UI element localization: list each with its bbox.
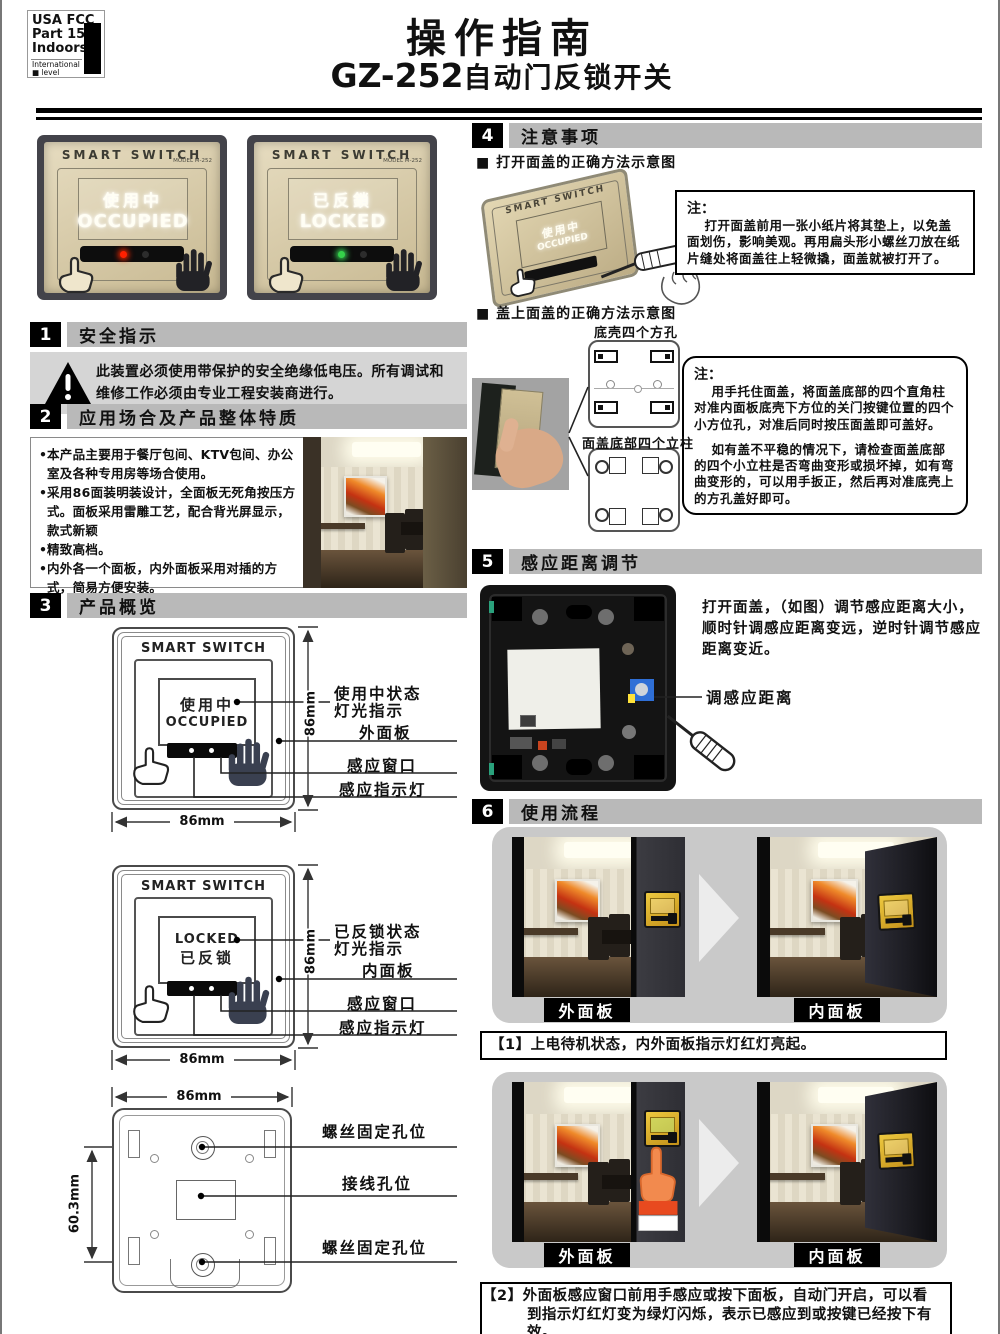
screw-hole-top (191, 1136, 215, 1160)
label-outer-panel: 外面板 (359, 721, 412, 743)
diagram-status-en: LOCKED (175, 932, 239, 947)
sensor-window-dot (142, 251, 149, 258)
diagram-status-cn: 使用中 (180, 694, 234, 715)
note-body: 用手托住面盖，将面盖底部的四个直角柱对准内面板底壳下方位的关门按键位置的四个小方… (694, 384, 956, 433)
flow-step2-caption: 【2】外面板感应窗口前用手感应或按下面板，自动门开启，可以看到指示灯红灯变为绿灯… (480, 1282, 952, 1334)
outer-panel-scene (512, 837, 685, 997)
shell-holes-diagram (588, 340, 680, 428)
label-shell-holes: 底壳四个方孔 (594, 322, 678, 341)
outer-switch (644, 891, 681, 928)
hand-holding-cover-photo (472, 378, 569, 490)
outer-panel-scene (512, 1082, 685, 1242)
product-photo-locked: SMART SWITCH MODEL M-252 已反鎖 LOCKED (247, 135, 437, 300)
diagram-status-cn: 已反锁 (180, 947, 234, 968)
small-hole (150, 1230, 159, 1239)
model-label: MODEL M-252 (383, 158, 422, 164)
inner-switch (877, 1131, 916, 1170)
feature-bullet: 内外各一个面板，内外面板采用对插的方式，简易方便安装。 (39, 559, 297, 597)
distance-potentiometer (630, 679, 654, 701)
label-sensor-led: 感应指示灯 (339, 778, 427, 800)
small-hole (150, 1154, 159, 1163)
screw (622, 643, 634, 655)
section-4-number: 4 (472, 123, 503, 148)
ceiling-light (352, 442, 421, 457)
solid-hand-icon (224, 971, 276, 1025)
mount-slot (128, 1130, 140, 1158)
outer-panel-label: 外面板 (544, 998, 630, 1022)
section-1-header: 1 安全指示 (30, 322, 467, 347)
flow-step1-caption: 【1】上电待机状态，内外面板指示灯红灯亮起。 (480, 1031, 947, 1060)
mount-slot (128, 1237, 140, 1265)
inner-panel-label: 内面板 (794, 998, 880, 1022)
section-2-header: 2 应用场合及产品整体特质 (30, 404, 467, 429)
header-rule-thick (36, 108, 982, 113)
switch-face: SMART SWITCH MODEL M-252 已反鎖 LOCKED (254, 142, 430, 293)
section-5-number: 5 (472, 549, 503, 574)
diagram-brand: SMART SWITCH (114, 641, 293, 656)
flow-step2-box: 外面板 内面板 (492, 1072, 947, 1268)
top-hole (566, 605, 592, 619)
section-1-title: 安全指示 (67, 322, 467, 347)
status-cn: 使用中 (103, 187, 163, 211)
section-5-title: 感应距离调节 (509, 549, 982, 574)
warning-triangle-icon (44, 361, 92, 405)
section-3-number: 3 (30, 593, 61, 618)
inner-panel-scene (757, 837, 937, 997)
corner-pad (492, 597, 522, 621)
open-door (423, 437, 467, 588)
section-3-title: 产品概览 (67, 593, 467, 618)
label-sensor-window: 感应窗口 (347, 754, 417, 776)
model-label: MODEL M-252 (173, 158, 212, 164)
wall-art (344, 476, 387, 517)
header-rule-thin (36, 117, 982, 120)
label-screw-hole-bottom: 螺丝固定孔位 (322, 1236, 427, 1258)
note-head: 注： (694, 364, 956, 384)
diagram-outer-panel: SMART SWITCH 使用中 OCCUPIED (112, 627, 295, 810)
label-inner-panel: 内面板 (362, 959, 415, 981)
component (552, 739, 566, 749)
flow-step1-box: 外面板 内面板 (492, 827, 947, 1023)
section-4-title: 注意事项 (509, 123, 982, 148)
status-cn: 已反鎖 (313, 187, 373, 211)
safety-warning-text: 此装置必须使用带保护的安全绝缘低电压。所有调试和维修工作必须由专业工程安装商进行… (96, 361, 456, 406)
component (538, 741, 547, 750)
application-room-photo (303, 437, 467, 588)
page-subtitle: GZ-252自动门反锁开关 (2, 56, 1000, 96)
arrow-right-icon (699, 1119, 739, 1207)
switch-face: SMART SWITCH MODEL M-252 使用中 OCCUPIED (44, 142, 220, 293)
pointing-hand-icon (130, 979, 172, 1025)
pointing-hand-icon (56, 252, 96, 294)
small-hole (245, 1154, 254, 1163)
pressing-hand-icon (637, 1144, 683, 1236)
label-screw-hole-top: 螺丝固定孔位 (322, 1120, 427, 1142)
section-6-title: 使用流程 (509, 799, 982, 824)
diagram-back-plate (112, 1108, 292, 1293)
mount-slot (264, 1130, 276, 1158)
pointing-hand-icon (506, 261, 539, 300)
dim-86mm-vertical: 86mm (304, 691, 319, 737)
section-6-header: 6 使用流程 (472, 799, 982, 824)
dim-60-3mm: 60.3mm (68, 1173, 83, 1235)
feature-bullet: 采用86面装明装设计，全面板无死角按压方式。面板采用雷雕工艺，配合背光屏显示，款… (39, 483, 297, 540)
component (520, 715, 536, 727)
outer-panel-label: 外面板 (544, 1243, 630, 1267)
corner-pad (634, 597, 664, 621)
open-cover-note: 注： 打开面盖前用一张小纸片将其垫上，以免盖面划伤，影响美观。再用扁头形小螺丝刀… (675, 190, 975, 275)
inner-switch (877, 892, 916, 931)
section-1-number: 1 (30, 322, 61, 347)
connector (510, 737, 532, 749)
wiring-hole (176, 1180, 236, 1220)
section-6-number: 6 (472, 799, 503, 824)
product-photo-occupied: SMART SWITCH MODEL M-252 使用中 OCCUPIED (37, 135, 227, 300)
section-3-header: 3 产品概览 (30, 593, 467, 618)
label-adjust-distance: 调感应距离 (706, 686, 794, 708)
mount-slot (264, 1237, 276, 1265)
diagram-brand: SMART SWITCH (114, 879, 293, 894)
sensor-window-dot (360, 251, 367, 258)
product-name: 自动门反锁开关 (464, 61, 674, 94)
solid-hand-icon (382, 244, 428, 292)
red-led (120, 251, 127, 258)
solid-hand-icon (224, 733, 276, 787)
status-screen: 使用中 OCCUPIED (78, 178, 188, 240)
note-body: 如有盖不平稳的情况下，请检查面盖底部的四个小立柱是否弯曲变形或损坏掉，如有弯曲变… (694, 442, 956, 507)
model-number: GZ-252 (330, 56, 463, 95)
door-frame (303, 437, 321, 588)
section-4-header: 4 注意事项 (472, 123, 982, 148)
close-cover-subtitle: ■ 盖上面盖的正确方法示意图 (476, 303, 676, 323)
dim-86mm-horizontal: 86mm (170, 814, 234, 829)
corner-pad (492, 755, 522, 779)
inner-panel-label: 内面板 (794, 1243, 880, 1267)
dim-86mm-top: 86mm (167, 1089, 231, 1104)
diagram-status-en: OCCUPIED (166, 715, 249, 730)
label-wiring-hole: 接线孔位 (342, 1172, 412, 1194)
pointing-hand-icon (266, 252, 306, 294)
green-led (338, 251, 345, 258)
features-box: 本产品主要用于餐厅包间、KTV包间、办公室及各种专用房等场合使用。 采用86面装… (30, 437, 304, 588)
dim-86mm-vertical: 86mm (304, 929, 319, 975)
bottom-tab (170, 1259, 240, 1288)
pointing-hand-icon (130, 741, 172, 787)
feature-bullet: 精致高档。 (39, 540, 297, 559)
section-2-number: 2 (30, 404, 61, 429)
feature-bullet: 本产品主要用于餐厅包间、KTV包间、办公室及各种专用房等场合使用。 (39, 445, 297, 483)
arrow-right-icon (699, 874, 739, 962)
inner-panel-scene (757, 1082, 937, 1242)
small-hole (245, 1230, 254, 1239)
screw (622, 725, 636, 739)
close-cover-note: 注： 用手托住面盖，将面盖底部的四个直角柱对准内面板底壳下方位的关门按键位置的四… (682, 356, 968, 515)
label-locked-status: 已反锁状态 灯光指示 (334, 924, 422, 958)
dim-86mm-horizontal: 86mm (170, 1052, 234, 1067)
section-5-header: 5 感应距离调节 (472, 549, 982, 574)
diagram-inner-panel: SMART SWITCH LOCKED 已反锁 (112, 865, 295, 1048)
label-sensor-window: 感应窗口 (347, 992, 417, 1014)
label-occupied-status: 使用中状态 灯光指示 (334, 686, 422, 720)
outer-switch (644, 1110, 681, 1147)
status-en: LOCKED (300, 211, 387, 232)
distance-adjust-text: 打开面盖，（如图）调节感应距离大小，顺时针调感应距离变远，逆时针调节感应距离变近… (702, 598, 988, 661)
bottom-hole (566, 759, 592, 775)
status-screen: 已反鎖 LOCKED (288, 178, 398, 240)
label-sensor-led: 感应指示灯 (339, 1016, 427, 1038)
section-2-title: 应用场合及产品整体特质 (67, 404, 467, 429)
screwdriver-icon (642, 700, 752, 810)
manual-page: USA FCC Part 15 Indoors International■ l… (0, 0, 1000, 1334)
solid-hand-icon (172, 244, 218, 292)
open-cover-subtitle: ■ 打开面盖的正确方法示意图 (476, 152, 676, 172)
cover-posts-diagram (588, 448, 680, 532)
note-head: 注： (687, 198, 963, 218)
label-cover-posts: 面盖底部四个立柱 (582, 433, 694, 452)
status-en: OCCUPIED (77, 211, 188, 232)
note-body: 打开面盖前用一张小纸片将其垫上，以免盖面划伤，影响美观。再用扁头形小螺丝刀放在纸… (687, 218, 963, 267)
